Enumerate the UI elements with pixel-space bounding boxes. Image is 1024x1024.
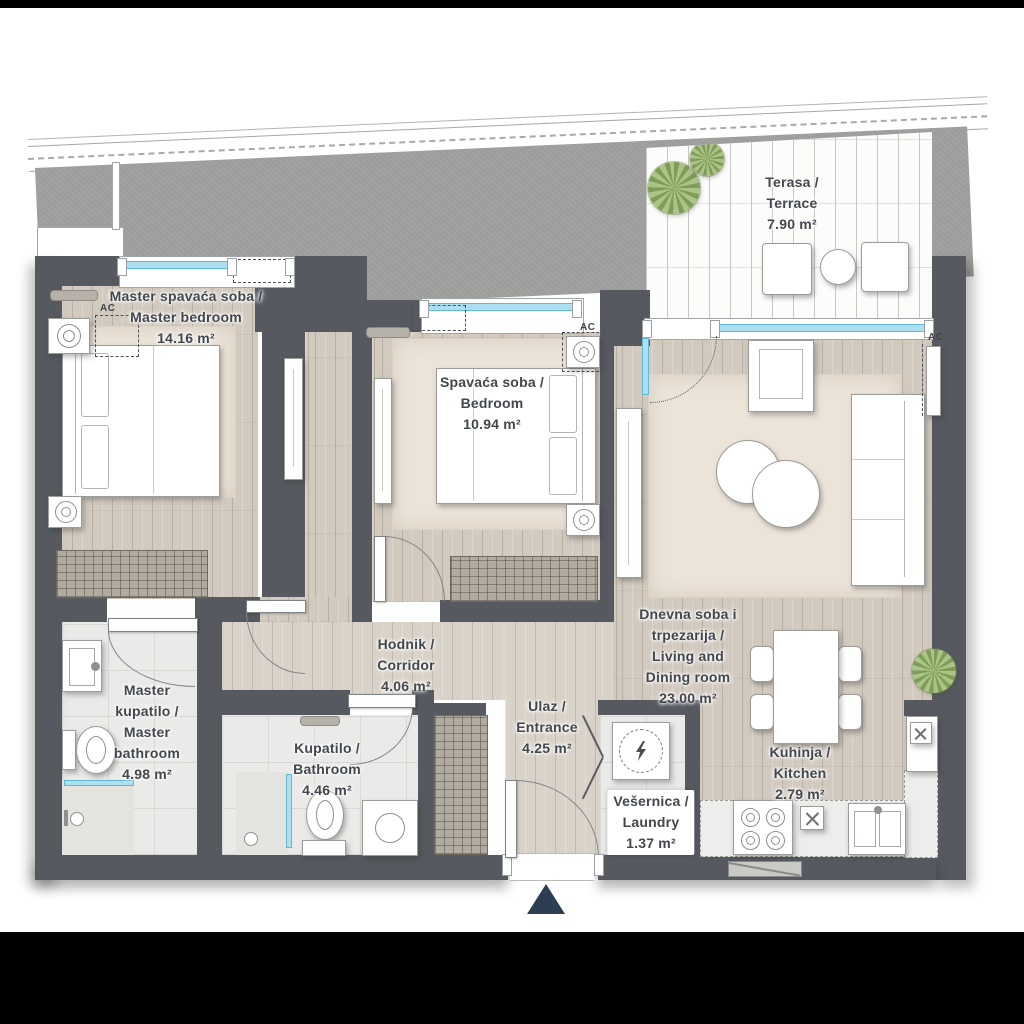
wardrobe-master [56, 550, 208, 598]
room-area: 4.98 m² [114, 764, 180, 785]
plant-icon [912, 649, 956, 693]
burner [766, 808, 785, 827]
fridge-symbol-icon [910, 722, 932, 744]
wall-bedroom-west [352, 332, 372, 600]
towel-rail [300, 716, 340, 726]
coffee-table [752, 460, 820, 528]
shower-tray [236, 772, 288, 855]
shower-head-icon [244, 832, 258, 846]
bed-master [62, 345, 220, 497]
bathroom-sink-cabinet [62, 640, 102, 692]
window-mullion [419, 300, 429, 318]
window-mullion [285, 258, 295, 276]
room-label-terrace: Terasa / Terrace 7.90 m² [765, 172, 819, 235]
room-label-master-bathroom: Master kupatilo / Master bathroom 4.98 m… [114, 680, 180, 785]
room-label-corridor: Hodnik / Corridor 4.06 m² [377, 634, 435, 697]
radiator [366, 327, 410, 338]
room-label-master-bedroom: Master spavaća soba / Master bedroom 14.… [110, 286, 263, 349]
chair [838, 646, 862, 682]
stove-icon [733, 800, 793, 855]
room-area: 23.00 m² [639, 688, 737, 709]
shower-head-icon [70, 812, 84, 826]
pillow [549, 437, 577, 495]
burner [741, 808, 760, 827]
top-frame-bar [0, 0, 1024, 8]
room-label-bedroom: Spavaća soba / Bedroom 10.94 m² [440, 372, 544, 435]
wall-bedroom-south-stub [352, 600, 372, 622]
wall-bathroom-north-a [222, 690, 350, 715]
door-jamb [594, 854, 604, 876]
chair [838, 694, 862, 730]
wall-bottom-a [35, 855, 508, 880]
window-mullion [572, 300, 582, 318]
fan-icon [573, 341, 595, 363]
room-label-kitchen: Kuhinja / Kitchen 2.79 m² [770, 742, 831, 805]
plant-icon [690, 142, 724, 176]
fan-icon [57, 324, 81, 348]
wall-top-left-corner [35, 256, 123, 286]
ac-unit [566, 336, 600, 368]
door-leaf-entrance [505, 780, 517, 858]
room-area: 14.16 m² [110, 328, 263, 349]
ac-label: AC [580, 322, 595, 333]
window-mullion [117, 258, 127, 276]
doormat [728, 861, 802, 877]
headboard [582, 369, 595, 501]
armchair [748, 340, 814, 412]
kitchen-counter-column [904, 770, 938, 858]
floor-plan: AC AC AC [0, 0, 1024, 1024]
room-area: 4.25 m² [516, 738, 578, 759]
bottom-frame-bar [0, 932, 1024, 1024]
wall-living-west [600, 346, 614, 618]
room-area: 1.37 m² [613, 833, 688, 854]
ac-unit [48, 318, 90, 354]
sofa-seat [852, 401, 905, 577]
headboard [63, 346, 76, 494]
toilet-bowl [76, 726, 116, 774]
toilet-tank [302, 840, 346, 856]
radiator [50, 290, 98, 301]
door-leaf-bedroom [374, 536, 386, 602]
lamp-icon [573, 509, 595, 531]
room-label-laundry: Vešernica / Laundry 1.37 m² [607, 790, 694, 855]
ac-unit [926, 346, 941, 416]
wall-corridor-west [197, 612, 222, 855]
kitchen-sink [848, 803, 906, 855]
burner [766, 831, 785, 850]
lamp-icon [55, 501, 77, 523]
room-area: 4.46 m² [293, 780, 361, 801]
room-label-living-dining: Dnevna soba i trpezarija / Living and Di… [639, 604, 737, 709]
shower-arm [64, 810, 68, 826]
appliance-symbol-icon [800, 806, 824, 830]
room-area: 10.94 m² [440, 414, 544, 435]
wall-fridge-niche [904, 700, 936, 716]
tv-cabinet [616, 408, 642, 578]
pillow [549, 375, 577, 433]
toilet-icon [62, 730, 76, 770]
balcony-door-dashed [233, 259, 291, 283]
pillow [81, 353, 109, 417]
window-mullion [227, 258, 237, 276]
shower-glass [286, 774, 292, 848]
window-glass-side [642, 338, 649, 395]
lightning-icon [634, 741, 648, 761]
wall-bedroom-south [440, 600, 614, 622]
entrance-arrow-icon [527, 884, 565, 914]
ac-dashed-line [922, 344, 923, 416]
door-leaf-master-bathroom [108, 618, 198, 632]
burner [741, 831, 760, 850]
floor-corridor-nook [305, 332, 352, 622]
chair [750, 646, 774, 682]
ac-label: AC [928, 332, 943, 343]
pillow [81, 425, 109, 489]
wardrobe-entrance [434, 715, 488, 855]
wall-master-south-a [35, 597, 107, 622]
terrace-chair [762, 243, 812, 295]
washing-machine-icon [612, 722, 670, 780]
terrace-chair [861, 242, 909, 292]
tv-panel [284, 358, 303, 480]
room-label-entrance: Ulaz / Entrance 4.25 m² [516, 696, 578, 759]
wardrobe-bedroom [450, 556, 598, 602]
plant-icon [648, 162, 700, 214]
nightstand [48, 496, 82, 528]
wall-bathroom-east [418, 690, 434, 880]
entrance-threshold [510, 853, 594, 881]
room-area: 7.90 m² [765, 214, 819, 235]
tv-panel [374, 378, 392, 504]
wall-wardrobe-top [430, 703, 486, 715]
window-glass [716, 324, 930, 332]
dining-table [773, 630, 839, 744]
room-label-bathroom: Kupatilo / Bathroom 4.46 m² [293, 738, 361, 801]
room-area: 4.06 m² [377, 676, 435, 697]
window-glass [123, 261, 235, 269]
door-leaf-master-bedroom [246, 600, 306, 613]
facade-mast [112, 162, 120, 230]
nightstand [566, 504, 600, 536]
blanket-fold [153, 346, 154, 494]
sofa [851, 394, 925, 586]
chair [750, 694, 774, 730]
bathroom-sink [362, 800, 418, 856]
room-area: 2.79 m² [770, 784, 831, 805]
terrace-table [820, 249, 856, 285]
